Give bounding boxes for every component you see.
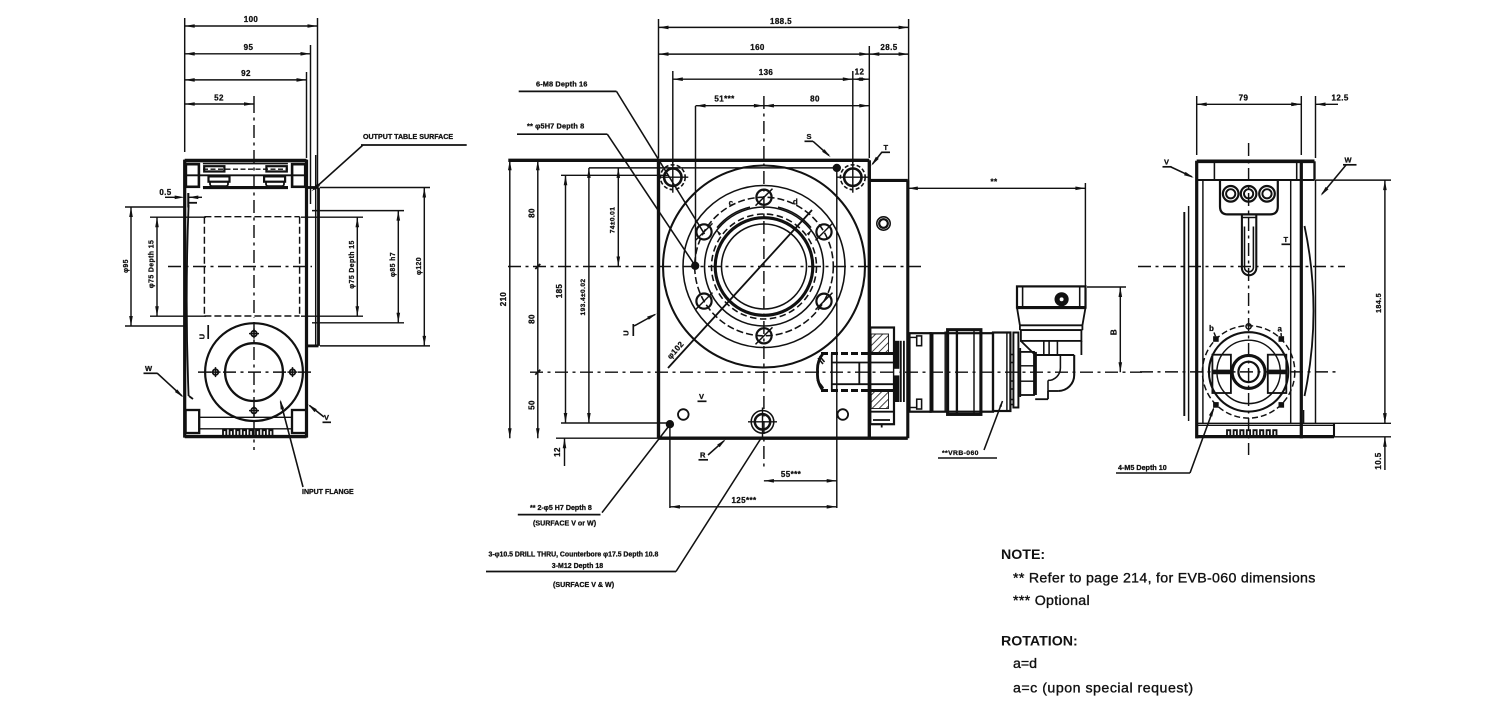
svg-text:T: T <box>1284 235 1289 244</box>
svg-text:4-M5 Depth 10: 4-M5 Depth 10 <box>1118 463 1167 472</box>
svg-text:NOTE:: NOTE: <box>1001 547 1045 563</box>
svg-text:125***: 125*** <box>731 496 757 505</box>
svg-text:28.5: 28.5 <box>880 43 897 52</box>
svg-text:a: a <box>1278 325 1283 334</box>
svg-text:W: W <box>1345 156 1353 165</box>
svg-text:188.5: 188.5 <box>770 17 792 26</box>
svg-text:W: W <box>145 364 153 373</box>
svg-text:3-M12 Depth 18: 3-M12 Depth 18 <box>552 563 603 570</box>
svg-text:** φ5H7 Depth 8: ** φ5H7 Depth 8 <box>527 122 584 131</box>
svg-text:51***: 51*** <box>714 95 735 104</box>
svg-text:6-M8 Depth 16: 6-M8 Depth 16 <box>536 80 587 89</box>
svg-text:80: 80 <box>527 208 536 218</box>
svg-text:c: c <box>729 199 734 208</box>
svg-text:b: b <box>1209 324 1214 333</box>
svg-text:184.5: 184.5 <box>1374 293 1383 313</box>
svg-text:55***: 55*** <box>781 470 802 479</box>
svg-text:12: 12 <box>855 67 865 76</box>
svg-text:193.4±0.02: 193.4±0.02 <box>580 279 587 316</box>
svg-text:95: 95 <box>244 43 254 52</box>
svg-text:12.5: 12.5 <box>1332 94 1349 103</box>
svg-text:74±0.01: 74±0.01 <box>610 207 617 234</box>
svg-text:T: T <box>884 143 889 152</box>
svg-text:79: 79 <box>1239 94 1249 103</box>
svg-text:R: R <box>700 451 706 460</box>
svg-text:V: V <box>699 392 704 401</box>
svg-text:ROTATION:: ROTATION: <box>1001 634 1078 650</box>
svg-text:**: ** <box>990 177 998 186</box>
svg-text:136: 136 <box>759 68 774 77</box>
svg-text:V: V <box>324 413 329 422</box>
svg-text:80: 80 <box>527 314 536 324</box>
svg-text:OUTPUT TABLE SURFACE: OUTPUT TABLE SURFACE <box>363 133 453 141</box>
svg-text:a=c (upon special request): a=c (upon special request) <box>1013 681 1194 697</box>
svg-text:φ85 h7: φ85 h7 <box>390 252 397 277</box>
svg-text:φ120: φ120 <box>416 257 423 275</box>
svg-text:92: 92 <box>241 69 251 78</box>
svg-text:(SURFACE V or W): (SURFACE V or W) <box>533 520 597 528</box>
svg-text:** 2-φ5 H7 Depth 8: ** 2-φ5 H7 Depth 8 <box>530 504 592 512</box>
svg-text:φ75 Depth 15: φ75 Depth 15 <box>349 240 356 288</box>
svg-text:10.5: 10.5 <box>1374 452 1383 469</box>
svg-text:*** Optional: *** Optional <box>1013 593 1090 609</box>
svg-text:160: 160 <box>750 43 765 52</box>
svg-text:3-φ10.5 DRILL THRU, Counterbor: 3-φ10.5 DRILL THRU, Counterbore φ17.5 De… <box>489 552 659 559</box>
svg-text:U: U <box>622 330 631 336</box>
svg-text:12: 12 <box>553 447 562 457</box>
svg-text:52: 52 <box>214 93 224 102</box>
svg-text:50: 50 <box>527 400 536 410</box>
svg-text:B: B <box>1110 329 1119 335</box>
svg-text:80: 80 <box>810 95 820 104</box>
svg-text:210: 210 <box>499 292 508 307</box>
svg-text:(SURFACE V & W): (SURFACE V & W) <box>553 581 615 589</box>
svg-text:INPUT FLANGE: INPUT FLANGE <box>302 489 354 496</box>
svg-text:0.5: 0.5 <box>159 188 171 197</box>
svg-text:d: d <box>793 198 798 207</box>
svg-text:a=d: a=d <box>1013 656 1037 672</box>
svg-text:** Refer to page 214, for EVB-: ** Refer to page 214, for EVB-060 dimens… <box>1013 571 1316 587</box>
svg-text:100: 100 <box>244 15 259 24</box>
svg-text:185: 185 <box>555 284 564 299</box>
svg-text:U: U <box>198 334 207 340</box>
svg-text:φ95: φ95 <box>123 259 130 273</box>
svg-text:V: V <box>1164 158 1169 167</box>
svg-text:φ75 Depth 15: φ75 Depth 15 <box>149 240 156 288</box>
svg-text:**VRB-060: **VRB-060 <box>942 450 979 457</box>
svg-text:S: S <box>807 132 812 141</box>
